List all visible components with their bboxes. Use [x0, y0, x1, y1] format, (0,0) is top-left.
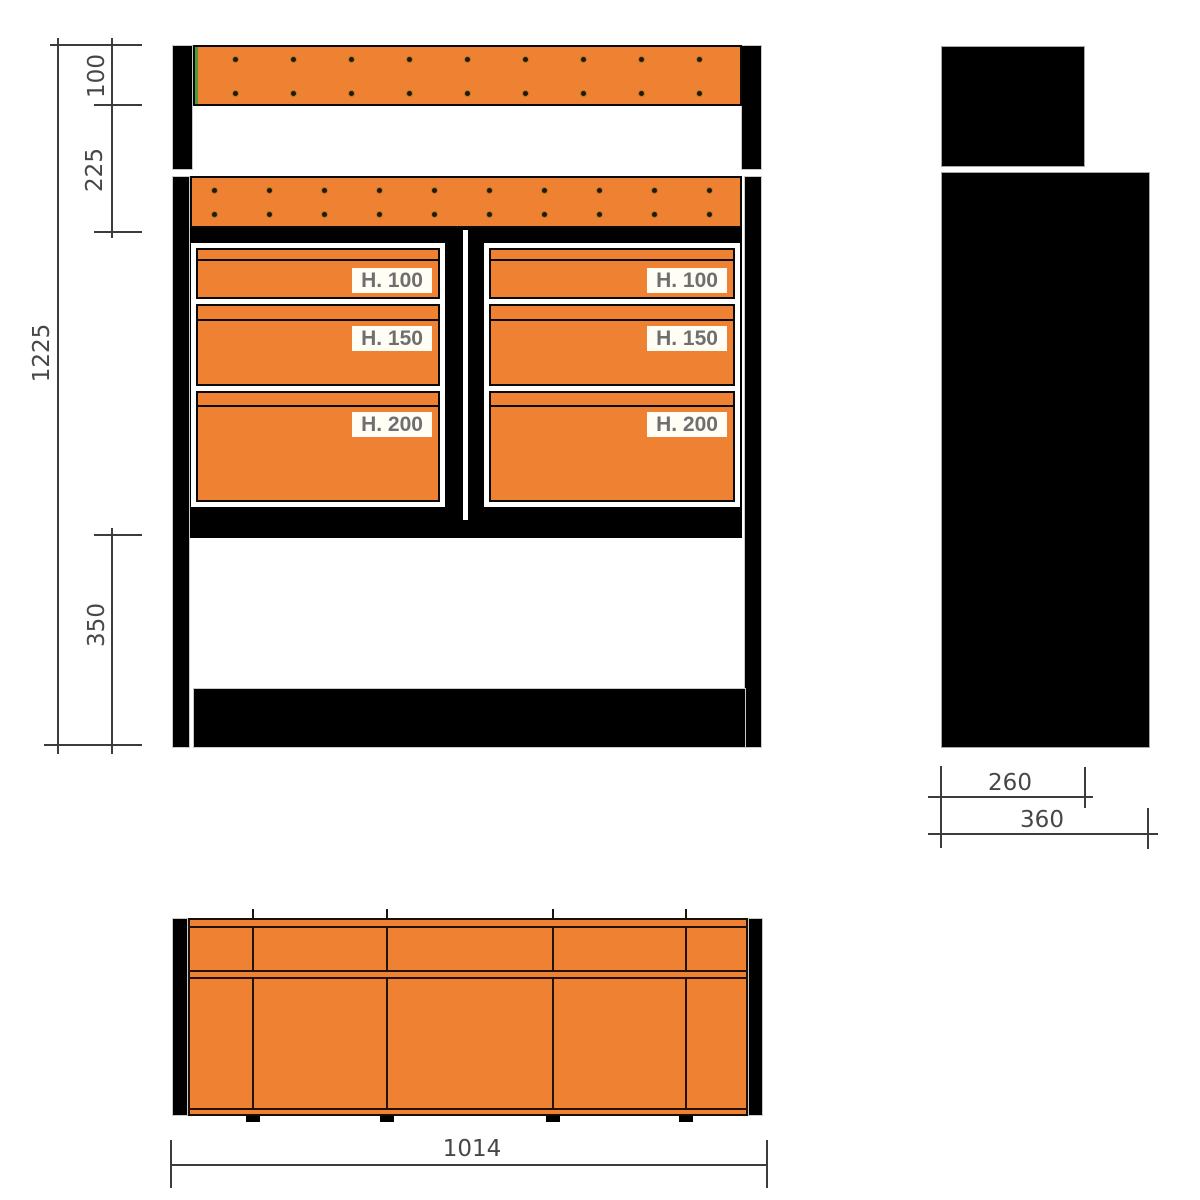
plan-divider	[685, 979, 687, 1108]
dim-line-360	[928, 833, 1158, 835]
side-lower-body	[941, 172, 1150, 748]
rivet-dot	[349, 91, 354, 96]
rivet-dot	[465, 91, 470, 96]
rivet-dot	[212, 188, 217, 193]
drawer-lip-line	[491, 319, 733, 321]
rivet-dot	[707, 188, 712, 193]
plan-divider	[252, 979, 254, 1108]
drawer-height-label: H. 100	[352, 268, 432, 293]
plan-left-strip	[172, 918, 188, 1116]
plan-front-lip-line	[188, 926, 748, 928]
plan-foot-mark	[380, 1116, 394, 1122]
drawer: H. 150	[489, 304, 735, 386]
rivet-dot	[322, 212, 327, 217]
rivet-dot	[432, 188, 437, 193]
dim-line-total-height	[57, 38, 59, 754]
plan-foot-mark	[246, 1116, 260, 1122]
rivet-dot	[377, 188, 382, 193]
drawer-lip-line	[491, 259, 733, 261]
rivet-dot	[639, 57, 644, 62]
rivet-dot	[542, 212, 547, 217]
drawer: H. 100	[489, 248, 735, 299]
plan-divider	[252, 926, 254, 972]
drawer: H. 200	[489, 391, 735, 502]
plan-right-strip	[748, 918, 763, 1116]
plan-tick-top	[252, 909, 254, 918]
dim-value-100: 100	[84, 41, 108, 111]
plan-foot-mark	[546, 1116, 560, 1122]
rivet-dot	[349, 57, 354, 62]
drawer-height-label: H. 150	[352, 326, 432, 351]
front-top-left-pillar	[172, 45, 193, 170]
rivet-dot	[597, 212, 602, 217]
rivet-dot	[407, 91, 412, 96]
drawer: H. 100	[196, 248, 440, 299]
rivet-dot	[432, 212, 437, 217]
front-view: H. 100 H. 150 H. 200 H. 100 H. 150 H. 20…	[0, 0, 800, 800]
dim-line-upper	[111, 38, 113, 238]
plan-divider	[552, 926, 554, 972]
drawer-height-label: H. 100	[647, 268, 727, 293]
rivet-dot	[465, 57, 470, 62]
dim-tick-260	[1084, 767, 1086, 808]
dim-line-1014	[171, 1164, 768, 1166]
dim-tick	[94, 231, 142, 233]
rivet-dot	[291, 57, 296, 62]
drawer-frame-right: H. 100 H. 150 H. 200	[484, 243, 740, 507]
dim-line-lower	[111, 528, 113, 754]
plan-tick-top	[685, 909, 687, 918]
drawer-height-label: H. 150	[647, 326, 727, 351]
technical-drawing-canvas: { "meta": { "type": "technical-drawing",…	[0, 0, 1200, 1200]
rivet-dot	[267, 212, 272, 217]
rivet-dot	[697, 57, 702, 62]
dim-value-225: 225	[82, 135, 106, 205]
plan-tick-top	[386, 909, 388, 918]
rivet-dot	[407, 57, 412, 62]
plan-view	[172, 918, 763, 1116]
plan-divider	[685, 926, 687, 972]
front-base-plinth	[193, 688, 746, 748]
front-top-shelf-panel	[193, 45, 742, 106]
rivet-dot	[291, 91, 296, 96]
rivet-dot	[597, 188, 602, 193]
rivet-dot	[581, 91, 586, 96]
rivet-dot	[652, 188, 657, 193]
rivet-dot	[639, 91, 644, 96]
dim-tick-1014-left	[170, 1140, 172, 1188]
rivet-dot	[652, 212, 657, 217]
drawer-lip-line	[491, 405, 733, 407]
plan-divider	[386, 926, 388, 972]
drawer-lip-line	[198, 259, 438, 261]
dim-tick	[44, 744, 142, 746]
drawer-column-divider	[463, 230, 468, 520]
drawer-lip-line	[198, 319, 438, 321]
rivet-dot	[707, 212, 712, 217]
rivet-dot	[322, 188, 327, 193]
dim-tick-360	[1147, 808, 1149, 849]
dim-value-350: 350	[84, 590, 108, 660]
front-second-shelf-panel	[190, 176, 742, 228]
front-right-pillar	[744, 176, 762, 748]
rivet-dot	[542, 188, 547, 193]
dim-tick	[94, 534, 142, 536]
front-top-right-pillar	[741, 45, 762, 170]
dim-value-1225: 1225	[29, 308, 53, 398]
rivet-dot	[487, 212, 492, 217]
plan-divider	[552, 979, 554, 1108]
rivet-dot	[523, 57, 528, 62]
rivet-dot	[233, 57, 238, 62]
plan-rear-lip-line	[188, 1108, 748, 1110]
plan-mid-line-a	[188, 970, 748, 972]
dim-ext-line	[940, 766, 942, 848]
green-edge-strip	[195, 47, 198, 104]
plan-deck	[188, 918, 748, 1116]
drawer: H. 150	[196, 304, 440, 386]
plan-divider	[386, 979, 388, 1108]
drawer-frame-left: H. 100 H. 150 H. 200	[191, 243, 445, 507]
dim-value-260: 260	[960, 770, 1060, 794]
front-left-pillar	[172, 176, 190, 748]
rivet-dot	[697, 91, 702, 96]
rivet-dot	[523, 91, 528, 96]
rivet-dot	[377, 212, 382, 217]
plan-tick-top	[552, 909, 554, 918]
side-upper-body	[941, 46, 1085, 167]
drawer: H. 200	[196, 391, 440, 502]
rivet-dot	[233, 91, 238, 96]
rivet-dot	[212, 212, 217, 217]
rivet-dot	[581, 57, 586, 62]
plan-foot-mark	[679, 1116, 693, 1122]
plan-mid-line-b	[188, 977, 748, 979]
rivet-dot	[267, 188, 272, 193]
dim-line-260	[928, 796, 1093, 798]
drawer-height-label: H. 200	[647, 412, 727, 437]
dim-value-1014: 1014	[410, 1136, 534, 1162]
dim-tick-1014-right	[766, 1140, 768, 1188]
dim-value-360: 360	[992, 807, 1092, 831]
drawer-lip-line	[198, 405, 438, 407]
drawer-height-label: H. 200	[352, 412, 432, 437]
rivet-dot	[487, 188, 492, 193]
